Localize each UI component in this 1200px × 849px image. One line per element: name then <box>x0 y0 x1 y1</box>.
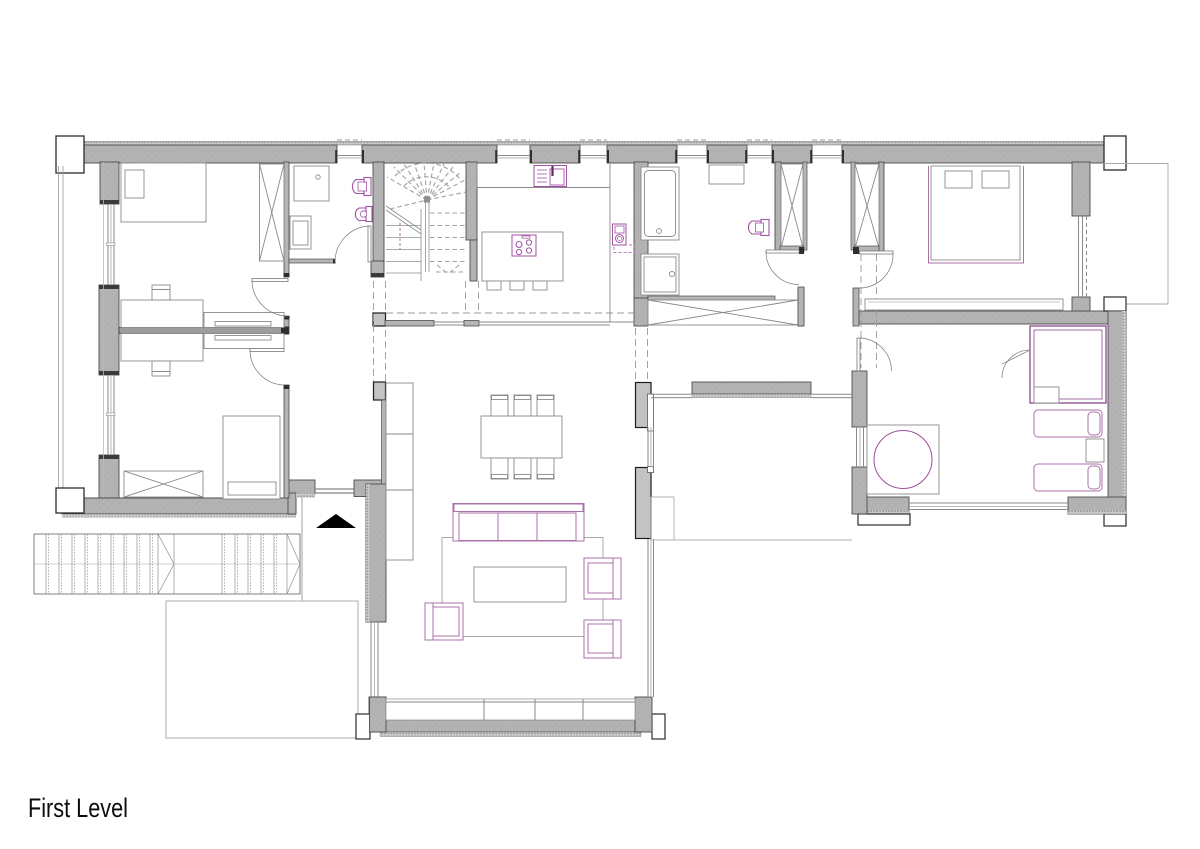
svg-text:First Level: First Level <box>28 793 128 823</box>
